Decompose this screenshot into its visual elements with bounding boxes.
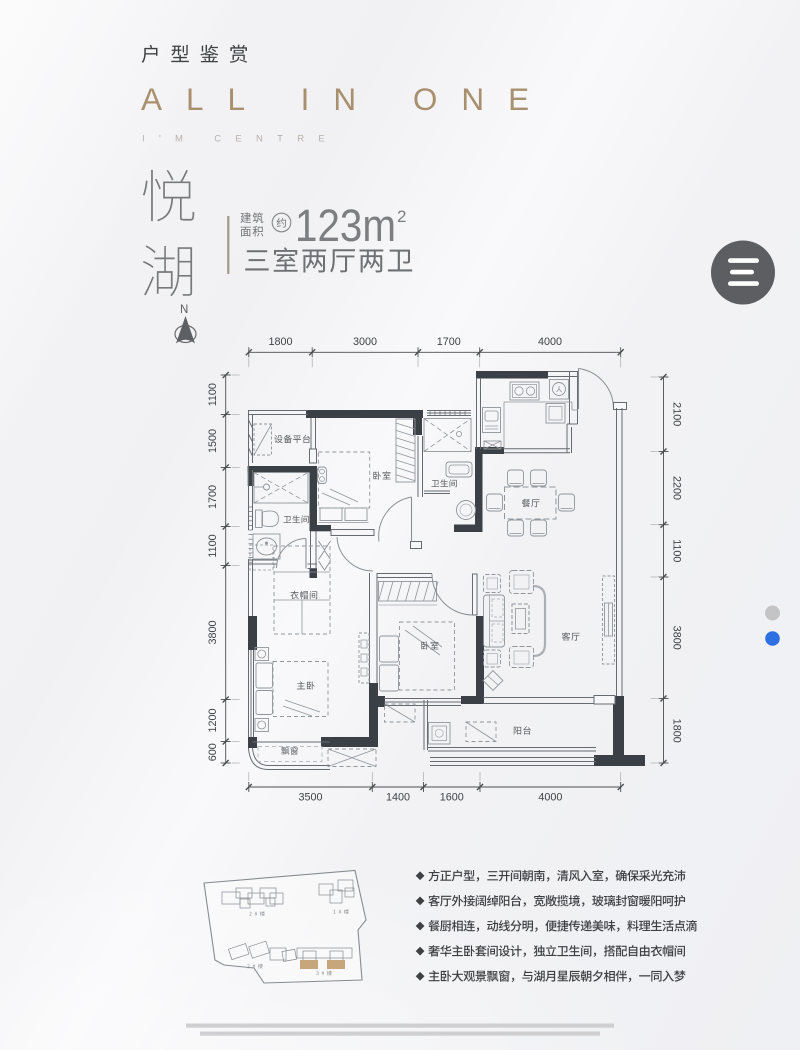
svg-text:1800: 1800 [671, 719, 683, 743]
svg-text:123m: 123m [295, 200, 396, 251]
svg-text:1600: 1600 [440, 792, 464, 804]
svg-text:1700: 1700 [207, 485, 219, 509]
svg-text:I'M CENTRE: I'M CENTRE [142, 134, 339, 145]
svg-text:ALL IN ONE: ALL IN ONE [141, 81, 553, 117]
svg-text:4000: 4000 [538, 336, 562, 348]
svg-text:1200: 1200 [207, 708, 219, 732]
svg-text:1100: 1100 [207, 534, 219, 557]
svg-text:1100: 1100 [671, 539, 683, 562]
svg-text:1500: 1500 [207, 429, 219, 453]
svg-text:1800: 1800 [268, 336, 292, 348]
svg-text:1700: 1700 [437, 336, 461, 348]
svg-text:2100: 2100 [671, 402, 683, 426]
svg-text:N: N [180, 304, 188, 316]
svg-text:1100: 1100 [207, 383, 219, 406]
svg-text:4000: 4000 [538, 792, 562, 804]
svg-text:3500: 3500 [298, 792, 322, 804]
svg-text:2: 2 [397, 207, 406, 226]
svg-text:600: 600 [207, 743, 219, 761]
svg-text:3000: 3000 [353, 336, 377, 348]
svg-text:2200: 2200 [671, 476, 683, 500]
svg-text:1400: 1400 [386, 792, 410, 804]
svg-text:3800: 3800 [207, 620, 219, 644]
svg-text:3800: 3800 [671, 626, 683, 650]
